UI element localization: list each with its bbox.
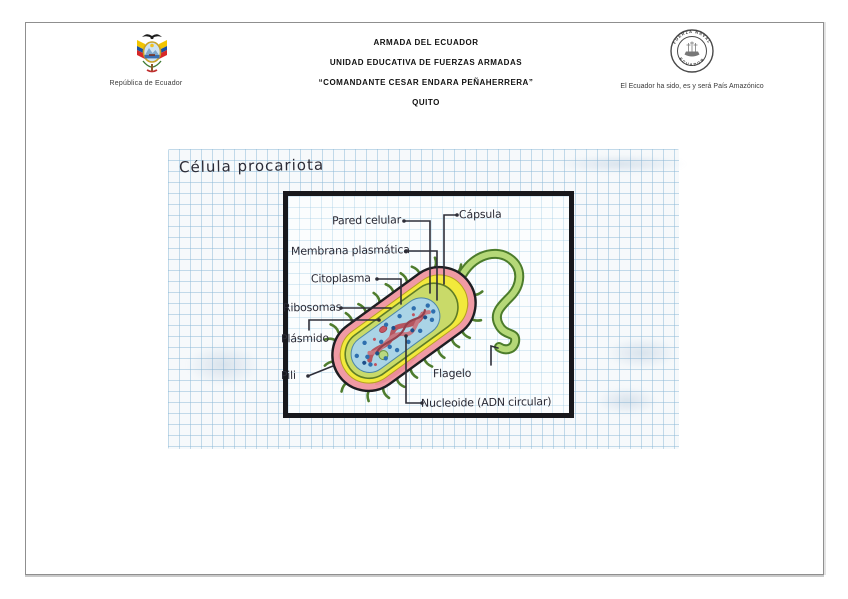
ink-smudge (606, 337, 678, 369)
graph-paper: Célula procariota (168, 149, 679, 449)
header-line-1: ARMADA DEL ECUADOR (226, 33, 626, 53)
worksheet-title: Célula procariota (179, 156, 324, 177)
label-ribosomas: Ribosomas (283, 301, 341, 315)
naval-seal-icon: FUERZA NAVAL ECUADOR (669, 28, 715, 74)
label-capsula: Cápsula (459, 208, 502, 222)
label-pared-celular: Pared celular (311, 213, 401, 227)
header-line-3: “COMANDANTE CESAR ENDARA PEÑAHERRERA” (226, 73, 626, 93)
label-nucleoide: Nucleoide (ADN circular) (421, 395, 552, 410)
ink-smudge (553, 155, 688, 173)
ecuador-coat-of-arms-icon (134, 31, 170, 75)
ink-smudge (596, 387, 658, 415)
label-pili: Pili (281, 369, 296, 382)
header-title-block: ARMADA DEL ECUADOR UNIDAD EDUCATIVA DE F… (226, 33, 626, 113)
left-caption: República de Ecuador (81, 80, 211, 87)
header-line-2: UNIDAD EDUCATIVA DE FUERZAS ARMADAS (226, 53, 626, 73)
label-flagelo: Flagelo (433, 367, 471, 381)
document-page: República de Ecuador ARMADA DEL ECUADOR … (25, 22, 824, 575)
ink-smudge (186, 344, 261, 386)
label-plasmido: Plásmido (281, 332, 329, 346)
header-line-4: QUITO (226, 93, 626, 113)
label-membrana-plasmatica: Membrana plasmática (291, 243, 410, 258)
diagram-frame: Pared celular Cápsula Membrana plasmátic… (283, 191, 574, 418)
screenshot: República de Ecuador ARMADA DEL ECUADOR … (0, 0, 848, 599)
label-citoplasma: Citoplasma (311, 272, 371, 286)
right-caption: El Ecuador ha sido, es y será País Amazó… (586, 83, 798, 90)
